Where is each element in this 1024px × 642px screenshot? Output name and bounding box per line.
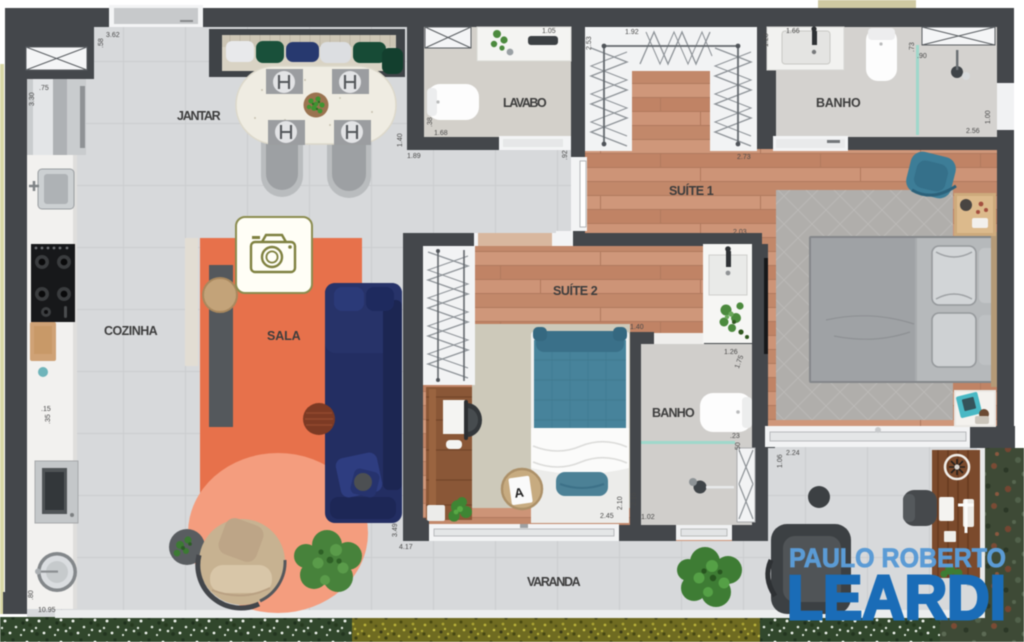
svg-text:.15: .15 — [41, 406, 51, 413]
svg-text:.35: .35 — [45, 414, 52, 424]
svg-text:.90: .90 — [917, 53, 927, 60]
svg-text:1.05: 1.05 — [542, 28, 556, 35]
svg-text:.38: .38 — [427, 117, 434, 127]
svg-text:2.45: 2.45 — [600, 513, 614, 520]
svg-text:.50: .50 — [735, 442, 742, 452]
svg-text:2.73: 2.73 — [737, 154, 751, 161]
svg-text:1.00: 1.00 — [985, 110, 992, 124]
svg-text:4.17: 4.17 — [399, 544, 413, 551]
svg-text:1.66: 1.66 — [786, 28, 800, 35]
svg-text:2.24: 2.24 — [786, 450, 800, 457]
svg-text:SUÍTE 1: SUÍTE 1 — [669, 183, 714, 198]
svg-text:LAVABO: LAVABO — [503, 96, 547, 110]
svg-text:1.68: 1.68 — [434, 130, 448, 137]
svg-text:SUÍTE 2: SUÍTE 2 — [553, 283, 598, 298]
svg-text:3.30: 3.30 — [29, 92, 36, 106]
svg-text:1.40: 1.40 — [397, 133, 404, 147]
svg-text:2.03: 2.03 — [733, 229, 747, 236]
svg-text:1.26: 1.26 — [724, 349, 738, 356]
svg-text:1.23: 1.23 — [763, 33, 770, 47]
svg-text:BANHO: BANHO — [652, 406, 695, 420]
svg-text:2.53: 2.53 — [586, 36, 593, 50]
svg-text:SALA: SALA — [267, 329, 301, 343]
svg-text:3.49: 3.49 — [392, 523, 399, 537]
svg-text:2.16: 2.16 — [631, 492, 638, 506]
svg-text:.73: .73 — [909, 42, 916, 52]
svg-text:.92: .92 — [562, 150, 569, 160]
svg-text:.75: .75 — [39, 85, 49, 92]
svg-text:1.02: 1.02 — [641, 514, 655, 521]
svg-text:3.62: 3.62 — [106, 32, 120, 39]
svg-text:COZINHA: COZINHA — [104, 324, 158, 338]
svg-text:JANTAR: JANTAR — [177, 109, 221, 123]
svg-text:BANHO: BANHO — [816, 96, 861, 110]
svg-text:2.56: 2.56 — [966, 128, 980, 135]
svg-text:1.92: 1.92 — [625, 29, 639, 36]
svg-text:.23: .23 — [730, 433, 740, 440]
svg-text:1.89: 1.89 — [407, 153, 421, 160]
svg-text:10.95: 10.95 — [38, 607, 56, 614]
svg-text:VARANDA: VARANDA — [527, 575, 581, 589]
svg-text:.58: .58 — [98, 38, 105, 48]
svg-text:.80: .80 — [28, 590, 35, 600]
svg-text:2.10: 2.10 — [617, 496, 624, 510]
svg-text:1.06: 1.06 — [777, 454, 784, 468]
svg-text:LEARDI: LEARDI — [787, 564, 1006, 633]
svg-text:1.40: 1.40 — [630, 324, 644, 331]
